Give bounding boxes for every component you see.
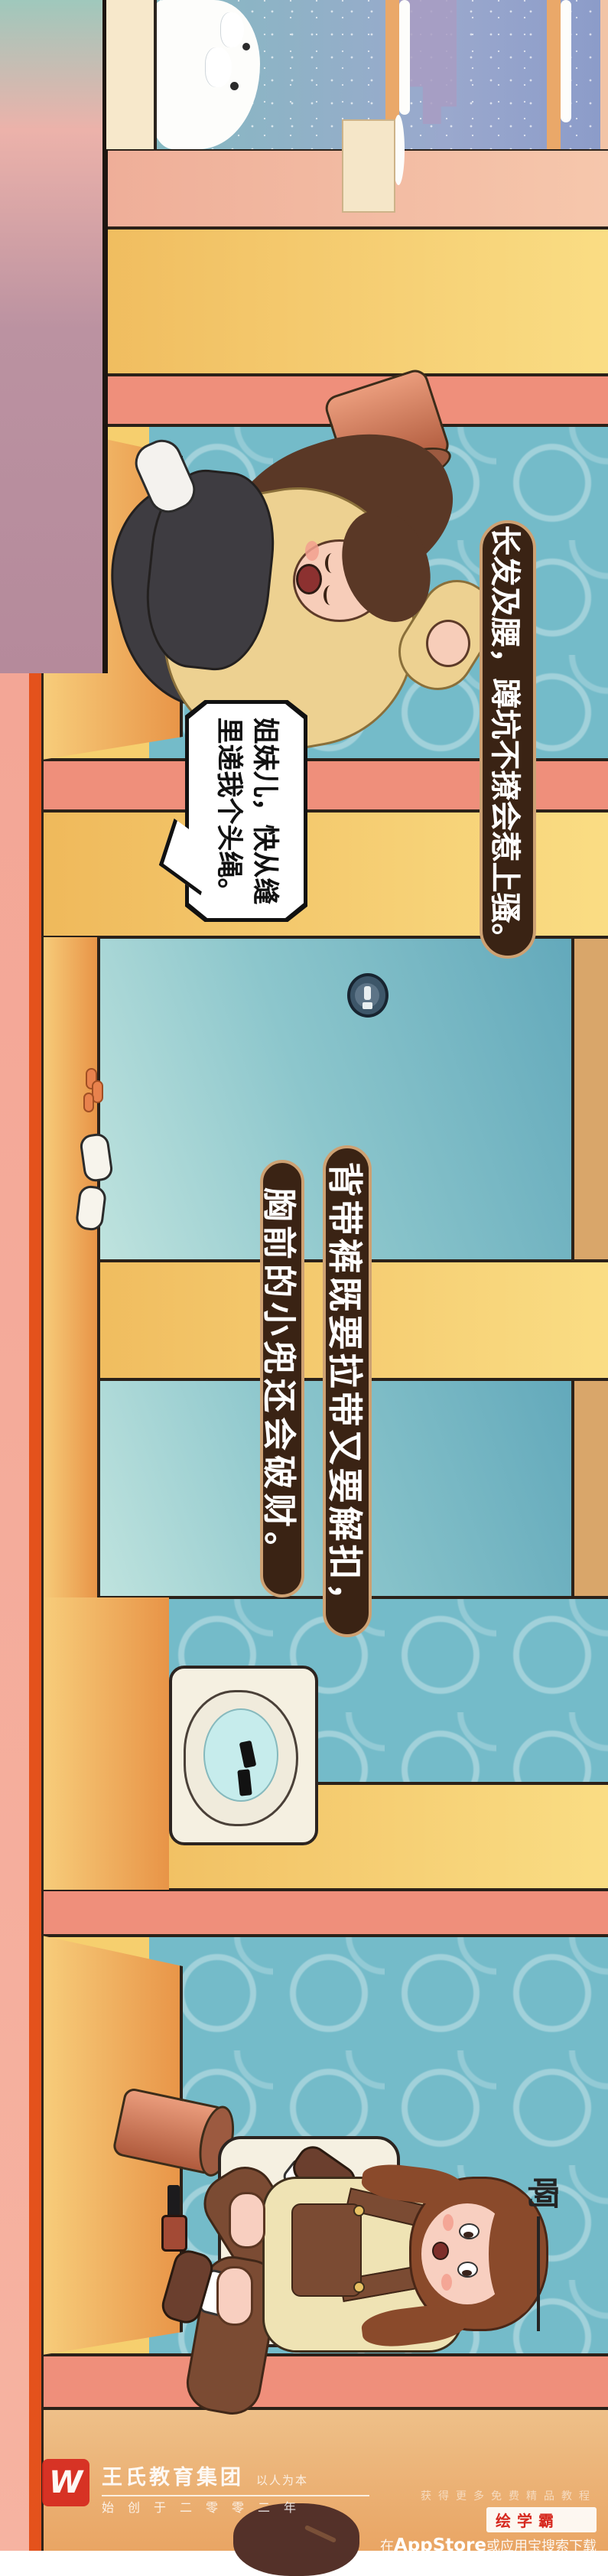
speech-bubble-inner: 姐妹儿，快从缝 里递我个头绳。: [189, 704, 304, 918]
girl1-hand: [426, 620, 470, 667]
speech-bubble: 姐妹儿，快从缝 里递我个头绳。: [185, 700, 307, 922]
girl2-button: [353, 2281, 365, 2293]
door-lock: [347, 973, 389, 1018]
watermark-right: 获得更多免费精品教程 绘学霸 在AppStore或应用宝搜索下载: [306, 2488, 597, 2555]
band-salmon-3: [42, 1890, 608, 1936]
girl2-button: [353, 2205, 365, 2216]
caption-bar-2b: 胸前的小兜还会破财。: [260, 1160, 304, 1597]
finger-under-door: [83, 1093, 94, 1112]
sfx-text: 啊: [522, 2177, 569, 2209]
door1-toprail: [571, 937, 608, 1261]
app-name: 绘学霸: [496, 2512, 560, 2530]
promo-line: 获得更多免费精品教程: [306, 2488, 597, 2503]
sfx-dash-line: [537, 2216, 540, 2331]
download-line: 在AppStore或应用宝搜索下载: [306, 2535, 597, 2555]
window-bar: [547, 0, 561, 149]
floor-bottom-salmon: [0, 673, 29, 2551]
snow-cap: [561, 0, 571, 122]
caption-2-line2-text: 胸前的小兜还会破财。: [258, 1187, 307, 1570]
divider-line: [39, 226, 608, 230]
stall3-floor: [42, 1597, 169, 1890]
girl2-pupil: [463, 2232, 473, 2238]
girl2-hand: [229, 2192, 265, 2249]
toilet-drain: [237, 1769, 252, 1796]
sill-block: [342, 119, 395, 213]
girl1-eye: [324, 585, 337, 605]
girl2-hand: [216, 2266, 253, 2326]
window-glass-line: [154, 0, 157, 149]
girl2-mouth: [432, 2242, 449, 2260]
swan: [206, 47, 232, 87]
store-name: AppStore: [394, 2535, 486, 2555]
swan: [221, 12, 244, 47]
caption-bar-2a: 背带裤既要拉带又要解扣，: [323, 1145, 372, 1637]
window-sill: [106, 0, 154, 149]
swan-head: [230, 82, 239, 90]
bubble-line-2: 里递我个头绳。: [210, 717, 246, 904]
girl1-blush: [305, 541, 319, 561]
window-lower-wall: [0, 0, 102, 673]
girl2-blush: [443, 2214, 454, 2231]
download-suffix: 或应用宝搜索下载: [486, 2539, 597, 2555]
divider-line: [39, 373, 608, 376]
girl2-eye: [459, 2223, 480, 2239]
download-prefix: 在: [380, 2539, 394, 2555]
girl1-eye: [325, 553, 339, 573]
snow-cap: [399, 0, 410, 115]
doors-floor-gap: [42, 937, 100, 1597]
comic-screenshot: { "page": {"width": 795, "height": 3334,…: [0, 0, 608, 2551]
brand-subtitle: 始创于二零零二年: [102, 2497, 310, 2516]
window-frame-top: [600, 0, 608, 149]
swan-head: [242, 43, 250, 50]
app-badge: 绘学霸: [486, 2507, 597, 2532]
logo-w-icon: W: [49, 2465, 83, 2500]
floor-stripe-orange: [29, 673, 44, 2551]
door-bolt: [167, 2185, 180, 2219]
divider-line: [39, 1934, 608, 1937]
door-lock-slot: [364, 986, 371, 1000]
girl1-mouth: [296, 564, 322, 594]
girl2-eye: [457, 2262, 478, 2278]
brand-slogan: 以人为本: [256, 2472, 308, 2488]
door2-toprail: [571, 1379, 608, 1597]
girl2-pupil: [462, 2270, 472, 2276]
band-peach: [42, 149, 608, 228]
caption-1-text: 长发及腰，蹲坑不撩会惹上骚。: [486, 526, 530, 954]
door-lock-red: [161, 2215, 187, 2252]
brand-logo: W: [42, 2459, 89, 2506]
band-yellow-1: [42, 228, 608, 375]
bubble-line-1: 姐妹儿，快从缝: [246, 717, 282, 904]
caption-2-line1-text: 背带裤既要拉带又要解扣，: [322, 1162, 372, 1621]
squat-toilet-front: [169, 1666, 318, 1845]
girl2-blush: [441, 2274, 452, 2291]
girl2-overall-bib: [291, 2203, 362, 2297]
snow-bank: [149, 23, 210, 145]
caption-bar-1: 长发及腰，蹲坑不撩会惹上骚。: [480, 520, 536, 959]
sfx-sigh: 啊: [527, 2177, 564, 2376]
door-lock-knob: [363, 1002, 372, 1009]
comic-canvas: 长发及腰，蹲坑不撩会惹上骚。 姐妹儿，快从缝 里递我个头绳。 背带裤既要拉带又要…: [0, 0, 608, 2551]
brand-name: 王氏教育集团: [102, 2460, 244, 2490]
